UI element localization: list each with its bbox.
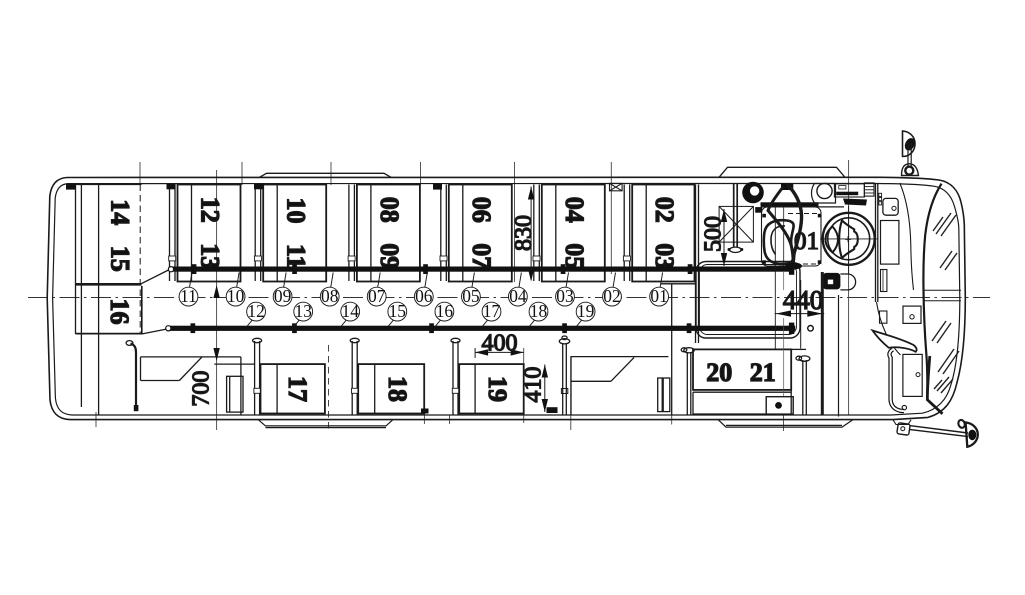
svg-text:19: 19: [483, 376, 512, 402]
svg-text:06: 06: [415, 286, 433, 306]
svg-text:12: 12: [247, 301, 264, 321]
svg-text:09: 09: [274, 286, 291, 306]
svg-text:19: 19: [577, 301, 594, 321]
svg-text:410: 410: [521, 367, 547, 403]
svg-text:04: 04: [509, 286, 527, 306]
svg-text:02: 02: [603, 286, 620, 306]
svg-text:16: 16: [105, 299, 134, 325]
svg-text:18: 18: [383, 376, 412, 402]
svg-text:02 03: 02 03: [650, 197, 679, 270]
svg-text:12 13: 12 13: [196, 197, 225, 270]
svg-text:400: 400: [482, 331, 518, 357]
svg-text:13: 13: [295, 301, 313, 321]
svg-text:500: 500: [700, 216, 726, 252]
svg-text:06 07: 06 07: [467, 197, 496, 270]
svg-text:20 21: 20 21: [706, 358, 776, 387]
svg-text:700: 700: [189, 371, 215, 407]
svg-text:03: 03: [556, 286, 574, 306]
svg-text:04 05: 04 05: [560, 197, 589, 270]
svg-text:830: 830: [511, 215, 537, 251]
svg-text:11: 11: [180, 286, 197, 306]
svg-text:05: 05: [462, 286, 480, 306]
svg-text:08: 08: [321, 286, 339, 306]
svg-text:14 15: 14 15: [106, 199, 135, 272]
svg-text:17: 17: [483, 301, 501, 321]
svg-text:18: 18: [530, 301, 548, 321]
svg-text:08 09: 08 09: [375, 197, 404, 270]
svg-text:17: 17: [283, 376, 312, 402]
svg-text:07: 07: [368, 286, 386, 306]
svg-text:15: 15: [389, 301, 407, 321]
svg-text:01: 01: [650, 286, 667, 306]
svg-text:440: 440: [783, 285, 824, 315]
svg-text:14: 14: [342, 301, 360, 321]
svg-text:16: 16: [436, 301, 454, 321]
svg-text:10 11: 10 11: [281, 197, 310, 268]
svg-text:10: 10: [227, 286, 245, 306]
